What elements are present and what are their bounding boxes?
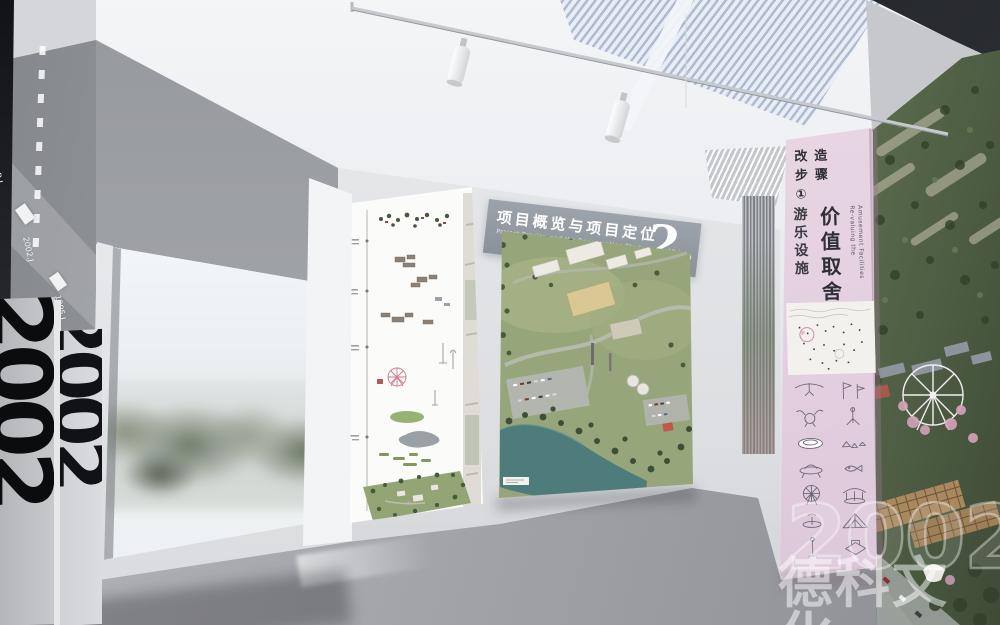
- evolution-diagram: [345, 185, 485, 525]
- flying-saucer-icon: [793, 457, 827, 480]
- year-signage-front: 2002: [0, 297, 55, 625]
- bull-head-icon: [792, 405, 826, 428]
- exhibition-hall-render: B.J 2002.J 1995.J: [0, 0, 1000, 625]
- louver-reflection: [742, 196, 775, 454]
- fish-pond-icon: [836, 456, 870, 479]
- drop-tower-icon: [835, 404, 869, 427]
- flag-pole-icon: [835, 378, 869, 401]
- spotlight: [604, 91, 633, 145]
- window-tree-view: [100, 380, 315, 510]
- spotlight: [446, 37, 473, 88]
- year-signage-side: 2002: [60, 329, 102, 625]
- hang-glider-icon: [792, 379, 826, 402]
- track-light: [0, 0, 1000, 170]
- step-number: ①: [795, 185, 836, 205]
- year-signage-text: 2002: [0, 297, 55, 507]
- site-plan-thumbnail: [786, 301, 876, 375]
- site-model-render: [495, 225, 695, 505]
- year-signage-text: 2002: [60, 329, 102, 488]
- rock-garden-icon: [836, 430, 870, 453]
- pool-ring-icon: [793, 431, 827, 454]
- watermark-brand: 德科文化: [778, 556, 1000, 625]
